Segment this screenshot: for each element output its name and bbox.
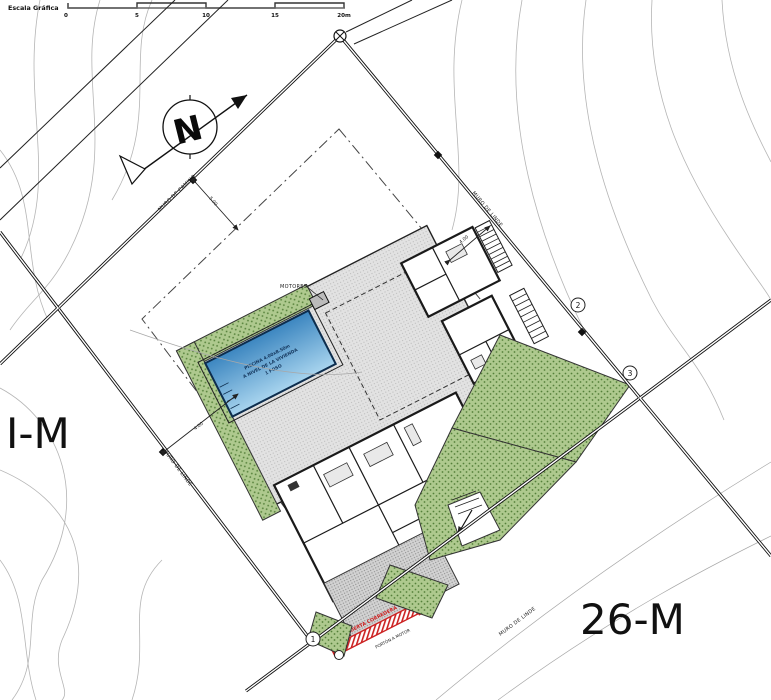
boundary-label-linde-left: MURO DE LINDE — [162, 449, 194, 488]
marker-2: 2 — [571, 298, 585, 312]
survey-point-icon — [334, 30, 346, 42]
boundary-label-linde-right: MURO DE LINDE — [470, 190, 503, 228]
scale-tick-15: 15 — [271, 13, 279, 19]
stairs-right — [510, 288, 549, 343]
scale-tick-0: 0 — [64, 13, 68, 19]
scale-label: Escala Gráfica — [8, 4, 59, 12]
lot-label-right: 26-M — [580, 595, 685, 644]
dim-5m: 5.00 — [207, 196, 218, 208]
svg-text:3: 3 — [628, 369, 633, 378]
scale-tick-20m: 20m — [337, 13, 351, 19]
marker-3: 3 — [623, 366, 637, 380]
site-plan-canvas: Escala Gráfica 0 5 10 15 20m N — [0, 0, 771, 700]
scale-tick-5: 5 — [135, 13, 139, 19]
scale-bar: Escala Gráfica 0 5 10 15 20m — [8, 3, 351, 19]
boundary-node-circle — [335, 651, 344, 660]
marker-1: 1 — [306, 632, 320, 646]
boundary-label-linde-bottom: MURO DE LINDE — [498, 606, 537, 638]
lot-label-left: I-M — [6, 409, 70, 458]
boundary-label-camino: MURO DE CAMINO — [157, 174, 197, 213]
svg-text:2: 2 — [576, 301, 581, 310]
svg-text:1: 1 — [311, 635, 316, 644]
dim-4m-left: 4.00 — [193, 421, 205, 432]
motores-label: MOTORES — [280, 284, 307, 290]
